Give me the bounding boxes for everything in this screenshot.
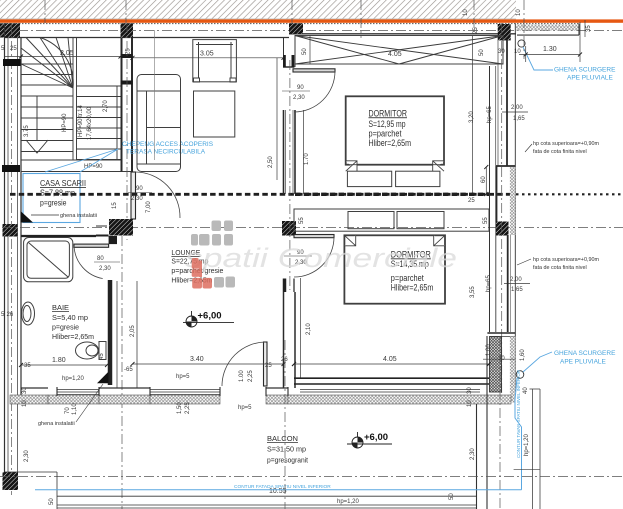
svg-text:35: 35 [24,363,31,369]
svg-text:2,30: 2,30 [293,95,305,101]
svg-text:17,64x20,00: 17,64x20,00 [87,106,93,140]
svg-text:hp=5: hp=5 [176,374,190,380]
svg-text:1.70: 1.70 [304,153,310,165]
svg-text:APE PLUVIALE: APE PLUVIALE [560,359,607,366]
svg-text:2,30: 2,30 [99,266,111,272]
svg-text:1.30: 1.30 [543,46,557,53]
svg-text:hp cota superioara=+0,90m: hp cota superioara=+0,90m [533,141,599,147]
svg-text:S=31,50 mp: S=31,50 mp [267,445,306,454]
svg-text:10: 10 [463,9,469,16]
svg-text:55: 55 [299,217,305,224]
svg-text:ghena instalatii: ghena instalatii [60,213,97,219]
svg-text:2,30: 2,30 [131,196,143,202]
svg-text:45: 45 [99,353,105,360]
svg-text:1,50: 1,50 [177,402,183,414]
svg-text:80: 80 [97,256,104,262]
svg-text:25: 25 [468,198,475,204]
svg-text:GHENA SCURGERE: GHENA SCURGERE [554,67,616,74]
svg-text:1,65: 1,65 [511,287,523,293]
svg-text:10: 10 [514,49,521,55]
svg-text:hp=1,20: hp=1,20 [62,376,85,382]
svg-text:GHENA SCURGERE: GHENA SCURGERE [554,350,616,357]
svg-text:2,25: 2,25 [248,370,254,382]
svg-text:hp=5: hp=5 [238,405,252,411]
svg-text:CASA SCARII: CASA SCARII [40,179,86,188]
svg-text:2,00: 2,00 [511,105,523,111]
svg-text:1.80: 1.80 [52,357,66,364]
svg-text:2,30: 2,30 [24,450,30,462]
svg-text:25: 25 [265,363,272,369]
svg-text:Hliber=2,65m: Hliber=2,65m [391,283,434,293]
svg-text:90: 90 [136,186,143,192]
svg-text:spatii Comerciale: spatii Comerciale [185,243,457,273]
svg-text:2.05: 2.05 [60,50,74,57]
svg-text:p=parchet: p=parchet [369,128,402,138]
svg-text:hp cota superioara=+0,90m: hp cota superioara=+0,90m [533,257,599,263]
svg-text:10: 10 [467,400,473,407]
svg-text:30: 30 [22,387,28,394]
svg-text:CONTUR TAVAN SPATIU NIVEL INFE: CONTUR TAVAN SPATIU NIVEL INFERIOR [516,369,521,458]
svg-text:HP=90 tr.14: HP=90 tr.14 [78,104,84,137]
svg-text:25: 25 [126,48,132,55]
svg-text:70: 70 [65,407,71,414]
svg-text:30: 30 [498,49,505,55]
svg-text:90: 90 [297,85,304,91]
svg-text:2,00: 2,00 [510,277,522,283]
svg-text:15: 15 [112,202,118,209]
svg-text:1,60: 1,60 [520,349,526,361]
svg-text:+6,00: +6,00 [198,311,222,322]
svg-text:p=gresie: p=gresie [40,199,67,208]
svg-text:BALCON: BALCON [267,434,298,443]
svg-text:40: 40 [523,387,529,394]
svg-text:2,70: 2,70 [103,100,109,112]
svg-text:3.05: 3.05 [200,51,214,58]
svg-text:4.05: 4.05 [388,51,402,58]
svg-text:HP=90: HP=90 [62,113,68,132]
svg-text:p=gresie: p=gresie [52,323,79,332]
svg-text:10: 10 [22,400,28,407]
svg-text:+6,00: +6,00 [364,432,388,443]
svg-text:1,10: 1,10 [72,403,78,415]
svg-text:10: 10 [516,9,522,16]
svg-text:CHEPENG ACCES ACOPERIS: CHEPENG ACCES ACOPERIS [122,141,214,148]
svg-text:p=gresogranit: p=gresogranit [267,456,309,465]
svg-text:2,25: 2,25 [185,402,191,414]
svg-text:Hliber=2,65m: Hliber=2,65m [52,332,94,341]
svg-text:3.40: 3.40 [190,356,204,363]
svg-text:50: 50 [49,498,55,505]
svg-text:2,05: 2,05 [130,325,136,337]
svg-text:3,20: 3,20 [469,111,475,123]
svg-text:50: 50 [449,493,455,500]
svg-text:fata de cota finita nivel: fata de cota finita nivel [533,265,587,271]
svg-text:2,50: 2,50 [268,156,274,168]
svg-text:4.05: 4.05 [383,356,397,363]
svg-text:50: 50 [479,49,485,56]
svg-text:7,00: 7,00 [146,201,152,213]
svg-text:fata de cota finita nivel: fata de cota finita nivel [533,149,587,155]
svg-text:2,10: 2,10 [306,323,312,335]
svg-text:-65: -65 [124,367,133,373]
svg-text:25: 25 [10,46,17,52]
svg-text:1.00: 1.00 [239,370,245,382]
svg-text:ghena instalatii: ghena instalatii [38,421,75,427]
svg-text:CONTUR FATADA SPATIU NIVEL INF: CONTUR FATADA SPATIU NIVEL INFERIOR [234,484,331,490]
svg-text:50: 50 [302,48,308,55]
svg-text:3,55: 3,55 [470,286,476,298]
svg-text:TERASA NECIRCULABILA: TERASA NECIRCULABILA [126,149,206,156]
svg-text:hp=1,20: hp=1,20 [337,499,360,505]
svg-text:55: 55 [483,217,489,224]
svg-text:HP=90: HP=90 [84,164,103,170]
svg-text:DORMITOR: DORMITOR [369,108,408,118]
svg-text:26: 26 [7,312,14,318]
svg-text:p=parchet: p=parchet [391,273,424,283]
svg-text:hp=1,20: hp=1,20 [524,433,530,456]
svg-text:3.75: 3.75 [24,125,30,137]
svg-text:35: 35 [586,25,592,32]
svg-text:S=5,40 mp: S=5,40 mp [52,313,88,322]
svg-text:APE PLUVIALE: APE PLUVIALE [567,75,614,82]
svg-text:30: 30 [467,387,473,394]
svg-text:BAIE: BAIE [52,303,69,312]
svg-text:2,30: 2,30 [470,448,476,460]
svg-text:Hliber=2,65m: Hliber=2,65m [369,138,412,148]
